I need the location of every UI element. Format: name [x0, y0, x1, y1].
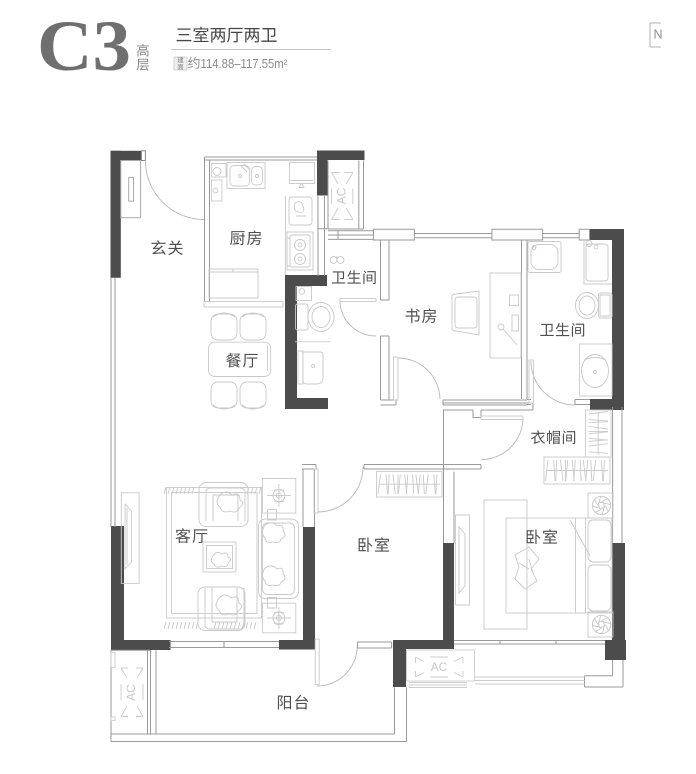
svg-text:N: N — [654, 28, 663, 42]
svg-text:AC: AC — [334, 187, 348, 204]
svg-text:AC: AC — [124, 684, 138, 701]
svg-text:AC: AC — [431, 660, 448, 674]
svg-text:114.88–117.55m²: 114.88–117.55m² — [201, 57, 288, 71]
svg-text:C3: C3 — [37, 6, 131, 86]
